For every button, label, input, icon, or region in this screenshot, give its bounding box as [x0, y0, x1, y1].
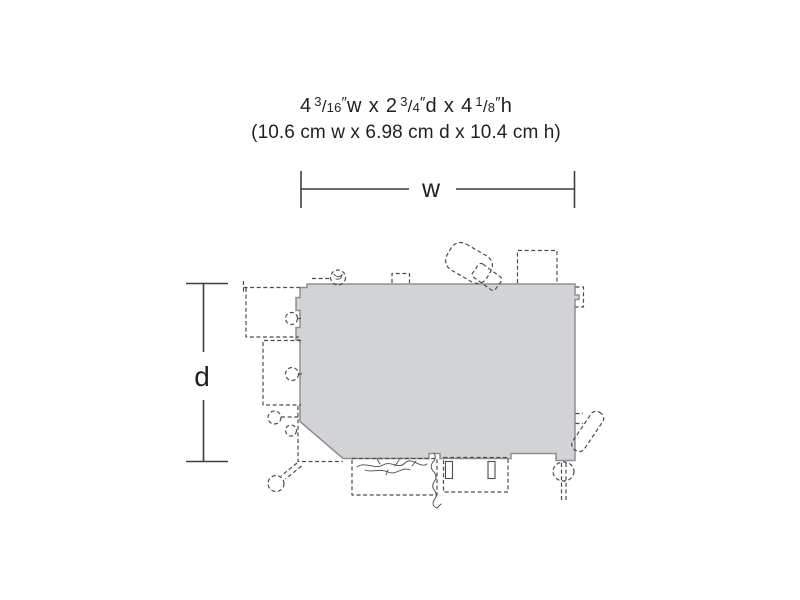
width-dimension-label: w: [421, 175, 441, 203]
depth-dimension-line: d: [186, 284, 228, 462]
bench-support-left: [446, 462, 453, 479]
diagram-canvas: w d: [0, 0, 800, 600]
footprint-diagram: 43/16″wx23/4″dx41/8″h (10.6 cm w x 6.98 …: [0, 0, 800, 600]
width-dimension-line: w: [301, 171, 575, 208]
bottom-edge-detail-outlines: [352, 453, 508, 508]
building-footprint: [296, 284, 579, 461]
bench-support-right: [488, 462, 495, 479]
depth-dimension-label: d: [194, 361, 210, 392]
